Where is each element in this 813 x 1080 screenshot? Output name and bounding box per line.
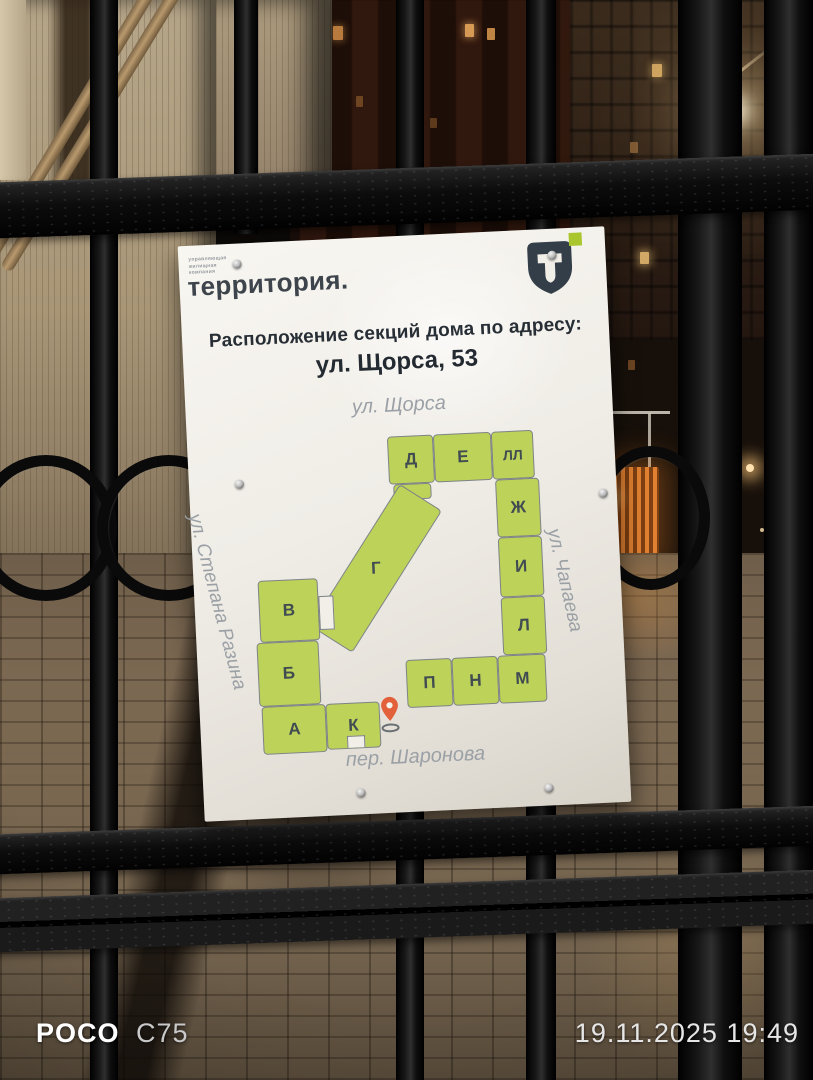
watermark-model: C75 [136,1018,189,1048]
night-photo-scene: управляющая жилищная компания территория… [0,0,813,1080]
map-section: В [258,578,321,643]
map-section: Л [501,595,548,655]
map-section: ЛЛ [491,430,535,480]
watermark-brand: POCO [36,1018,120,1048]
map-notch [347,735,366,748]
map-section: Н [451,656,499,706]
territory-logo-icon [526,240,574,296]
map-section-label: Г [371,558,382,578]
map-section: А [261,704,327,755]
location-pin-icon [377,694,403,733]
map-section: П [405,658,453,708]
logo-accent-square [568,232,582,246]
map-section: Ж [495,478,542,538]
map-section: Д [387,435,435,485]
map-section: Б [256,640,321,707]
map-section: М [497,654,547,704]
section-map-sign: управляющая жилищная компания территория… [178,226,632,821]
map-bridge [318,595,335,630]
timestamp-watermark: 19.11.2025 19:49 [575,1018,799,1049]
map-section: И [498,536,545,598]
map-section: Е [433,432,493,483]
camera-watermark: POCO C75 [36,1018,189,1049]
